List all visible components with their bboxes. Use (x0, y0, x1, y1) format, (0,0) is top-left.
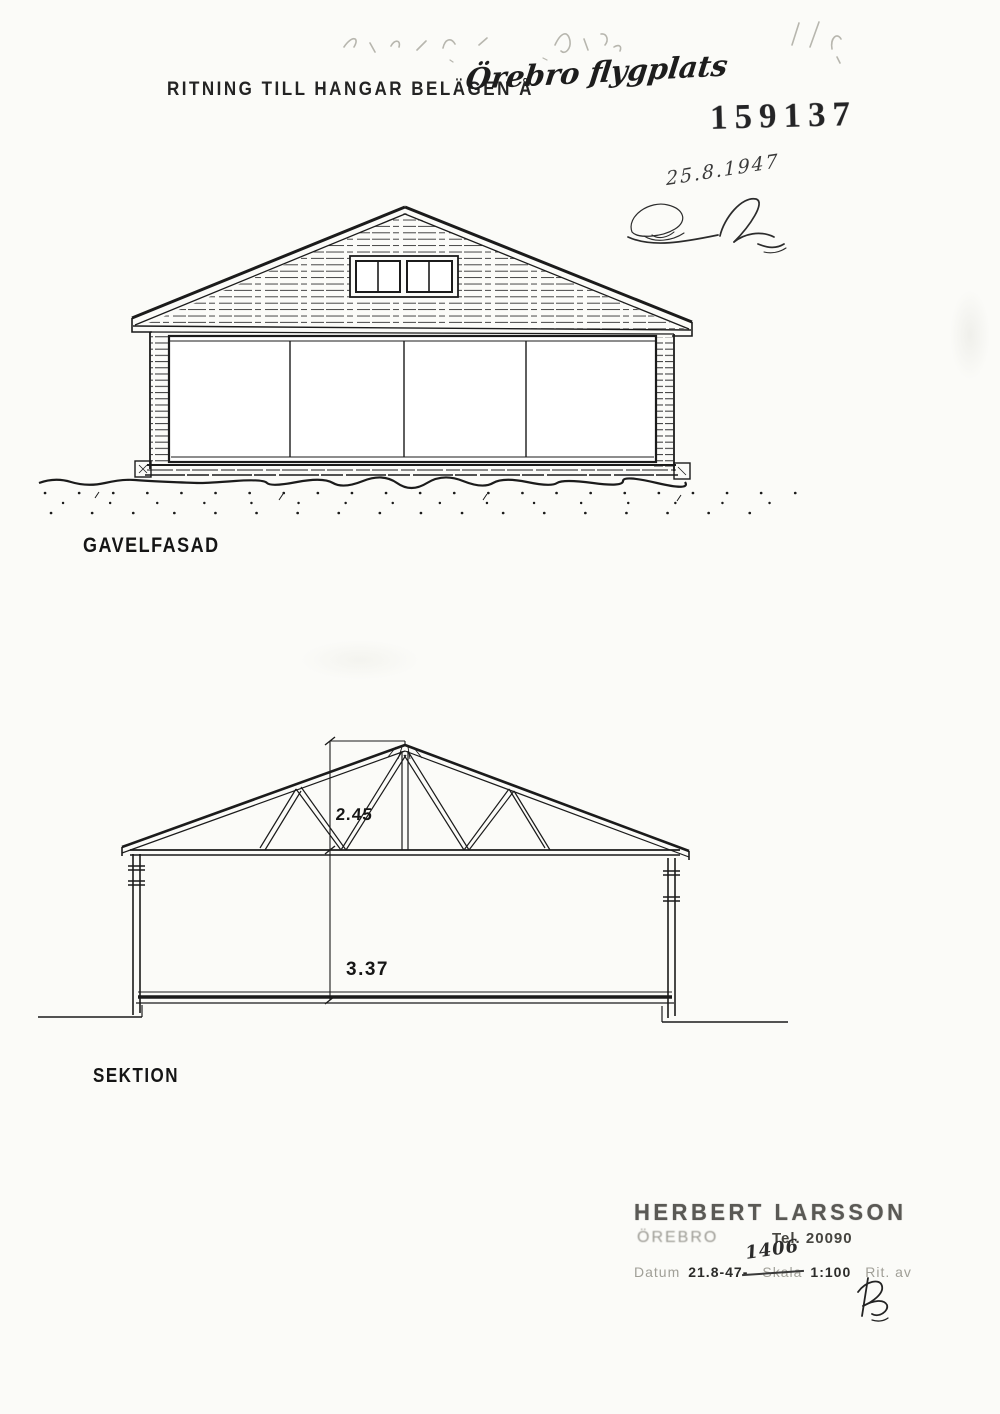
drawn-by-initials-signature (848, 1272, 898, 1324)
facade-view-label: GAVELFASAD (83, 533, 220, 558)
handwritten-scale-correction: 1406 (744, 1235, 801, 1263)
gable-window-band (350, 256, 458, 297)
drawing-sheet: RITNING TILL HANGAR BELÄGEN Å Örebro fly… (0, 0, 1000, 1414)
ground-line (39, 477, 805, 513)
stamp-city: ÖREBRO (637, 1229, 718, 1247)
section-view-label: SEKTION (93, 1064, 179, 1088)
plinth-band (135, 461, 690, 479)
truss-members (260, 751, 550, 850)
hangar-doors (169, 336, 656, 462)
section-drawing: 2.45 3.37 (30, 725, 800, 1045)
paper-smudge (300, 640, 420, 680)
section-walls (128, 854, 680, 1018)
stamp-architect-name: HERBERT LARSSON (634, 1199, 907, 1226)
tie-beam (130, 850, 680, 855)
paper-smudge (950, 290, 990, 380)
floor-slab (136, 992, 674, 1003)
archive-number-stamp: 159137 (710, 94, 858, 138)
stamp-scale-value: 1:100 (810, 1264, 851, 1280)
stamp-date-label: Datum (634, 1264, 680, 1280)
section-roof (122, 745, 689, 860)
facade-drawing (35, 185, 820, 530)
dim-wall-height: 3.37 (346, 959, 389, 980)
stamp-date-value: 21.8-47- (688, 1264, 748, 1280)
dim-roof-height: 2.45 (335, 805, 373, 824)
